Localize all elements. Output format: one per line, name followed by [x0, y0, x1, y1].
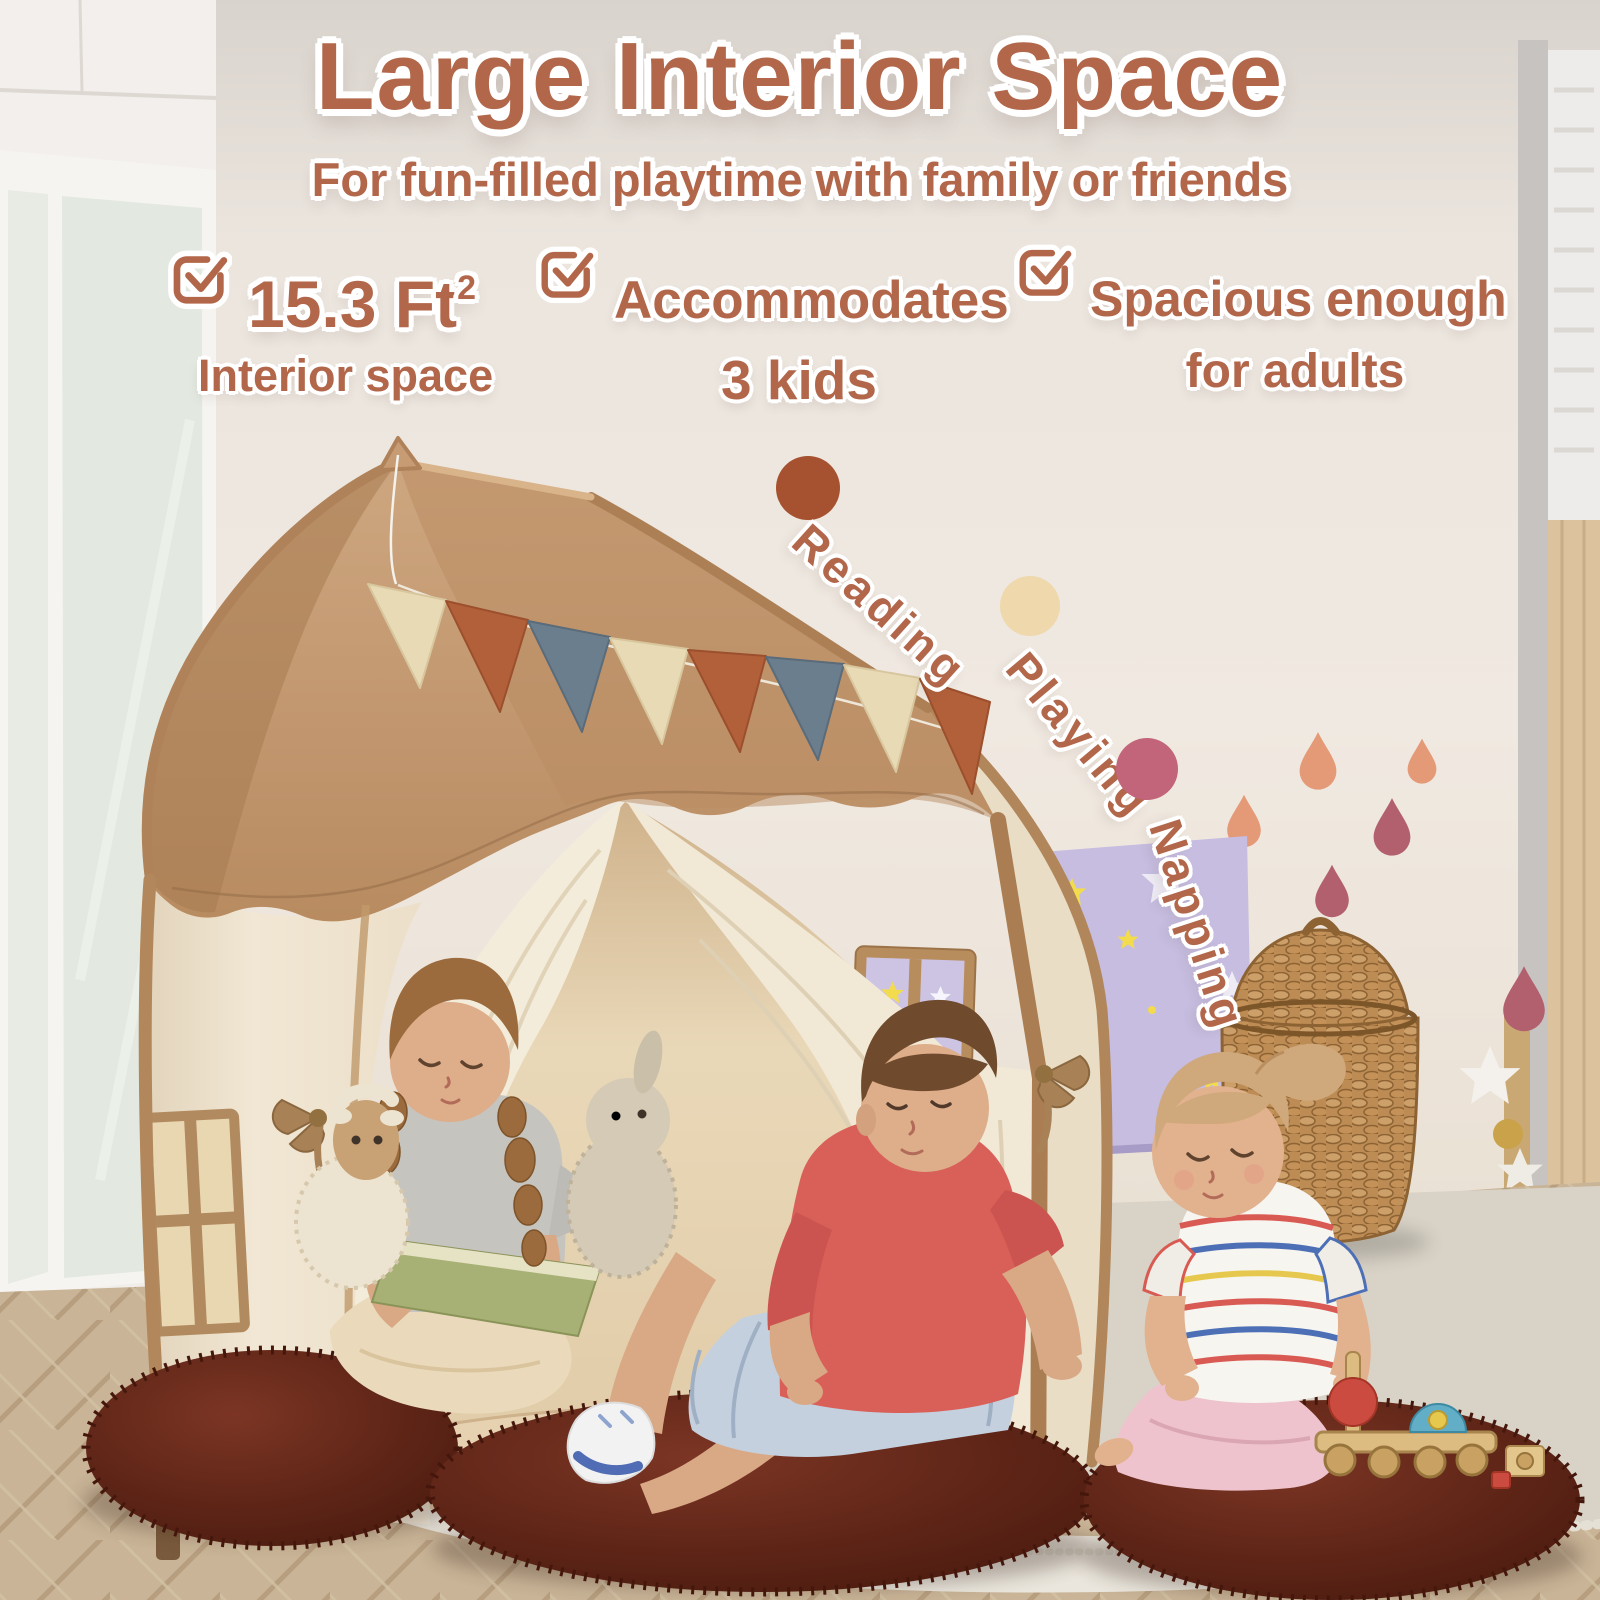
playing-dot-icon — [1000, 576, 1060, 636]
feature-value: Accommodates — [614, 270, 1009, 331]
feature-accommodates-kids: Accommodates 3 kids — [536, 244, 1006, 434]
feature-value: Spacious enough — [1090, 270, 1507, 328]
tent-left-window — [146, 1113, 245, 1331]
checkbox-icon — [536, 244, 598, 309]
feature-value: 15.3 Ft2 — [248, 266, 476, 342]
page-subtitle: For fun-filled playtime with family or f… — [0, 152, 1600, 207]
feature-label: 3 kids — [614, 348, 984, 412]
checkbox-icon — [168, 248, 232, 315]
product-marketing-image: Large Interior Space For fun-filled play… — [0, 0, 1600, 1600]
napping-dot-icon — [1116, 738, 1178, 800]
reading-dot-icon — [776, 456, 840, 520]
checkbox-icon — [1014, 242, 1076, 307]
feature-spacious: Spacious enough for adults — [1014, 242, 1534, 432]
page-title: Large Interior Space — [0, 22, 1600, 132]
superscript: 2 — [457, 269, 476, 307]
room-scene — [0, 0, 1600, 1600]
feature-label: Interior space — [198, 350, 493, 402]
feature-label: for adults — [1090, 344, 1500, 399]
